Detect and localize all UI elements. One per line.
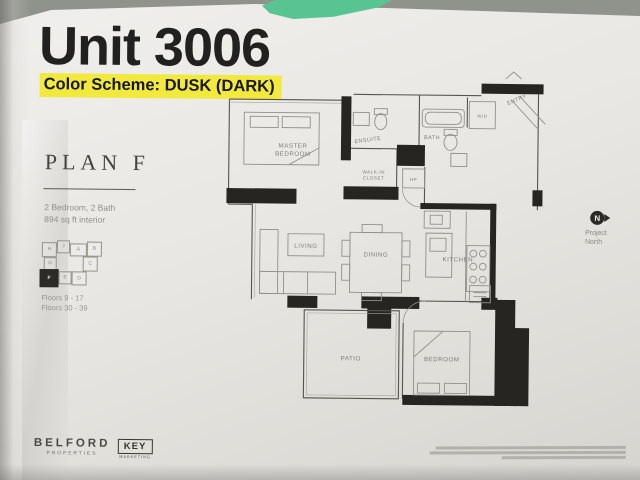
label-kitchen: KITCHEN [442,256,473,263]
printed-content: Unit 3006 Color Scheme: DUSK (DARK) PLAN… [0,0,640,480]
keyplan-unit: A [70,243,87,256]
project-north-label: Project North [585,229,607,247]
label-bath: BATH [424,135,440,141]
label-walkin-1: WALK-IN [362,169,385,174]
keyplan-thumbnail: H J A B G C F E D [39,240,104,291]
ensuite-sink [353,112,369,125]
photo-canvas: Unit 3006 Color Scheme: DUSK (DARK) PLAN… [0,0,640,480]
sofa [259,271,335,294]
project-north-line2: North [585,238,607,247]
belford-name: BELFORD [34,437,111,450]
keyplan-unit: B [87,242,102,257]
label-master-2: BEDROOM [275,151,311,158]
label-bedroom: BEDROOM [424,356,460,363]
keyplan-unit: J [57,240,70,253]
label-entry: ENTRY [506,93,527,107]
keyplan-unit: D [72,271,87,285]
spec-area: 894 sq ft interior [44,213,115,226]
label-wd: W/D [477,114,487,119]
floors-line-2: Floors 30 - 39 [41,303,87,313]
floors-range: Floors 9 - 17 Floors 30 - 39 [41,293,87,313]
label-patio: PATIO [341,355,361,362]
bathtub [422,109,464,127]
fine-print-line [502,456,626,459]
plan-specs: 2 Bedroom, 2 Bath 894 sq ft interior [44,201,115,226]
entry-chevron-icon [506,72,522,79]
label-ensuite: ENSUITE [354,136,381,145]
label-walkin-2: CLOSET [363,175,384,180]
keyplan-unit: C [83,257,98,272]
bath-toilet [444,134,457,150]
belford-logo: BELFORD PROPERTIES [34,437,111,457]
bath-sink [451,153,467,166]
north-compass-icon: N [590,211,604,225]
spec-bed-bath: 2 Bedroom, 2 Bath [44,201,115,214]
dining-table [349,232,402,293]
keyplan-unit: E [59,271,72,284]
north-arrow-icon [604,214,610,222]
fine-print-line [430,451,626,454]
label-master-1: MASTER [279,143,308,150]
belford-sub: PROPERTIES [34,451,111,457]
label-hp: HP [410,177,417,182]
ensuite-toilet [375,114,387,130]
kitchen-sink [430,238,446,251]
keyplan-unit: H [42,242,57,257]
key-logo-sub: MARKETING [118,455,153,459]
room-labels: MASTER BEDROOM ENSUITE WALK-IN CLOSET BA… [273,91,528,364]
sofa-chaise [259,229,278,293]
thick-walls [224,81,543,406]
plan-name: PLAN F [45,149,150,176]
divider-line [44,188,136,190]
label-living: LIVING [294,243,317,250]
project-north-line1: Project [585,229,607,238]
keyplan-unit-highlighted: F [39,269,58,287]
label-dining: DINING [363,251,388,258]
fine-print-lines [428,446,626,462]
key-logo-box: KEY [118,439,153,454]
floors-line-1: Floors 9 - 17 [41,293,87,303]
fine-print-line [436,446,626,449]
key-marketing-logo: KEY MARKETING [118,436,153,459]
floorplan-drawing: MASTER BEDROOM ENSUITE WALK-IN CLOSET BA… [214,67,548,410]
